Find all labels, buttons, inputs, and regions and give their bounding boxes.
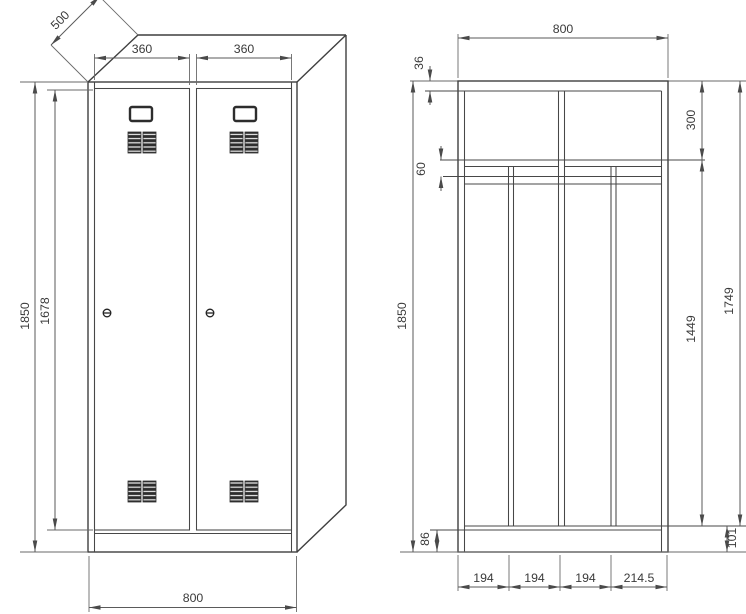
dim-label-hanging-space: 1449	[684, 315, 698, 343]
dim-section-shelf: 60	[414, 146, 441, 191]
dim-label-door-height: 1678	[38, 297, 52, 325]
dim-label-compartment-4: 214.5	[624, 571, 655, 585]
dim-label-compartment-1: 194	[473, 571, 494, 585]
vent-grille-bottom-left-door	[128, 481, 156, 502]
dim-front-depth: 500	[48, 0, 138, 82]
dim-label-section-width: 800	[553, 22, 574, 36]
section-partition-right	[611, 167, 616, 527]
lock-icon-left-door	[103, 309, 111, 317]
technical-drawing-locker: 500 360 360 1850 1678	[0, 0, 746, 614]
dim-label-shelf: 60	[414, 162, 428, 176]
dim-label-section-height: 1850	[395, 302, 409, 330]
drawing-svg: 500 360 360 1850 1678	[0, 0, 746, 614]
section-view-dimensions: 800 36 300 60 1850 1449	[395, 22, 740, 591]
section-hat-shelf	[440, 160, 705, 167]
cabinet-front-frame	[88, 82, 297, 552]
section-outer-body	[458, 81, 668, 552]
dim-label-depth: 500	[48, 8, 73, 33]
front-view	[88, 35, 346, 552]
vent-grille-top-left-door	[128, 132, 156, 153]
vent-grille-top-right-door	[230, 132, 258, 153]
dim-label-floor-height: 101	[725, 528, 739, 549]
dim-label-interior-height: 1749	[722, 287, 736, 315]
dim-section-hanging-space: 1449	[684, 160, 702, 526]
dim-front-height: 1850	[18, 82, 88, 552]
section-center-divider	[559, 91, 565, 526]
dim-section-interior-height: 1749	[722, 81, 740, 526]
dim-label-overall-height: 1850	[18, 302, 32, 330]
lock-icon-right-door	[206, 309, 214, 317]
dim-label-top-panel: 36	[412, 56, 426, 70]
dim-label-overall-width: 800	[183, 591, 204, 605]
dim-section-plinth: 86	[418, 530, 437, 552]
dim-label-compartment-3: 194	[575, 571, 596, 585]
dim-front-door-height: 1678	[38, 90, 93, 530]
vent-grille-bottom-right-door	[230, 481, 258, 502]
dim-section-width: 800	[458, 22, 668, 78]
dim-section-compartments: 194 194 194 214.5	[458, 555, 667, 591]
name-plate-left	[130, 107, 152, 121]
dim-section-top-panel: 36	[412, 56, 430, 105]
dim-section-top-compartment: 300	[684, 81, 702, 160]
dim-label-compartment-2: 194	[524, 571, 545, 585]
section-floor-panel	[430, 526, 746, 530]
dim-label-plinth: 86	[418, 532, 432, 546]
dim-label-door-width-left: 360	[132, 42, 153, 56]
cabinet-side-panel	[297, 35, 346, 552]
dim-label-top-compartment: 300	[684, 110, 698, 131]
dim-section-floor-height: 101	[725, 526, 739, 552]
front-view-dimensions: 500 360 360 1850 1678	[18, 0, 297, 612]
dim-label-door-width-right: 360	[234, 42, 255, 56]
dim-section-height: 1850	[395, 81, 413, 552]
section-partition-left	[509, 167, 514, 527]
section-clothes-rail	[443, 177, 662, 185]
name-plate-right	[234, 107, 256, 121]
dim-front-width: 800	[89, 556, 297, 612]
